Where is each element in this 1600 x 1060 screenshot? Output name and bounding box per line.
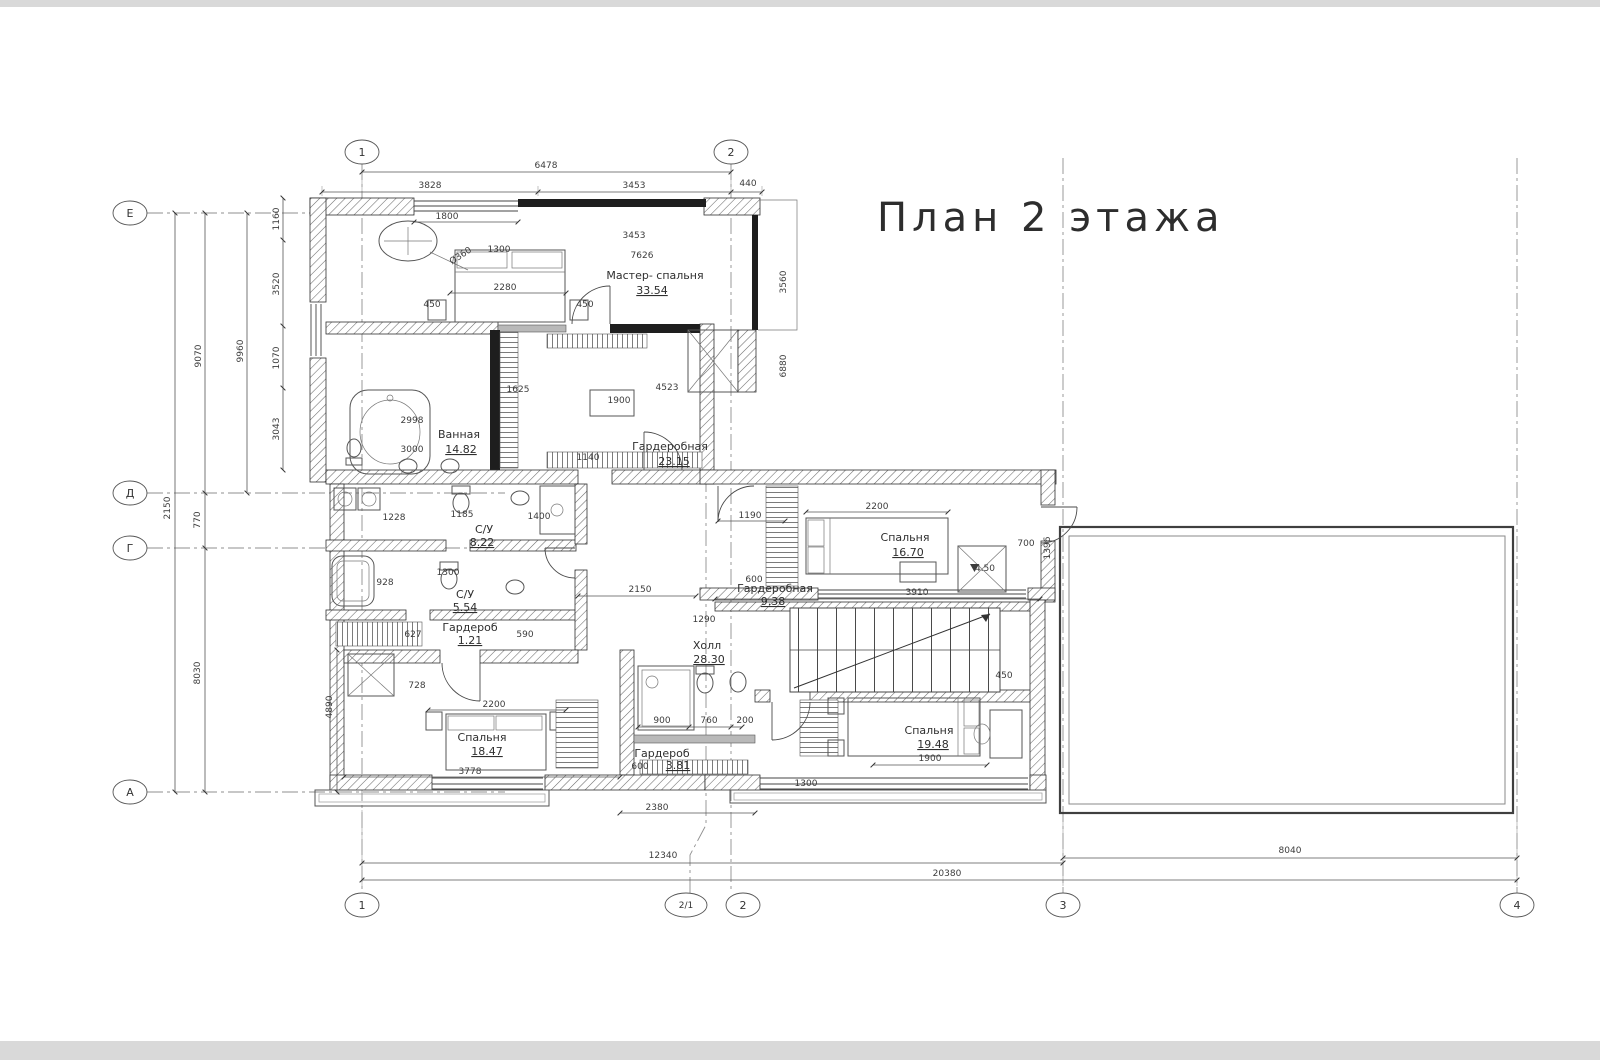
dim-label: 4890 [325, 695, 335, 718]
dim-label: 2200 [483, 700, 506, 710]
dim-label: 1900 [608, 396, 631, 406]
dim-label: 20380 [933, 869, 962, 879]
dim-label: 6478 [535, 161, 558, 171]
room-area: 33.54 [636, 284, 668, 297]
axis-label: А [126, 786, 134, 799]
dim-label: 440 [739, 179, 756, 189]
shower [540, 486, 575, 534]
axis-label: Д [126, 487, 135, 500]
dim-label: 2150 [629, 585, 652, 595]
dim-label: 3778 [459, 767, 482, 777]
room-area: 9.38 [761, 595, 786, 608]
dim-label: 2280 [494, 283, 517, 293]
dim-label: 600 [631, 762, 648, 772]
table [900, 562, 936, 582]
toilet [696, 666, 714, 693]
dim-label: 1185 [451, 510, 474, 520]
balcony-right [730, 790, 1046, 803]
dim-label: 1140 [577, 453, 600, 463]
dim-label: 2380 [646, 803, 669, 813]
dim-label: 1290 [693, 615, 716, 625]
room-name: Гардеробная [737, 582, 813, 595]
dim-label: 3000 [401, 445, 424, 455]
floor-plan-drawing: 1 2 1 2/1 2 3 4 Е Д Г А [0, 0, 1600, 1060]
axis-label: 2/1 [679, 901, 693, 911]
room-name: Спальня [881, 531, 930, 544]
closet-comb [640, 760, 748, 774]
dimensions: 6478 3828 3453 440 12340 20380 8040 1800… [163, 161, 1517, 886]
dim-label: 2150 [163, 496, 173, 519]
room-name: Гардеробная [632, 440, 708, 453]
closet-comb [547, 334, 647, 348]
room-area: 19.48 [917, 738, 949, 751]
room-area: 5.54 [453, 601, 478, 614]
drawing-title: План 2 этажа [877, 195, 1225, 241]
dim-label: 6880 [779, 354, 789, 377]
dim-label: 1300 [488, 245, 511, 255]
dim-label: 627 [404, 630, 421, 640]
dim-label: 12340 [649, 851, 678, 861]
dim-label: 450 [423, 300, 440, 310]
room-area: 3.81 [666, 759, 691, 772]
terrace [1060, 527, 1513, 813]
room-area: 14.82 [445, 443, 477, 456]
dim-label: 728 [408, 681, 425, 691]
dim-label: 1800 [436, 212, 459, 222]
dim-label: 7626 [631, 251, 654, 261]
desk [974, 710, 1022, 758]
dim-label: 1900 [919, 754, 942, 764]
dim-label: 900 [653, 716, 670, 726]
dim-label: 1625 [507, 385, 530, 395]
dim-label: 1300 [437, 568, 460, 578]
axis-label: 1 [359, 899, 366, 912]
dim-label: 3828 [419, 181, 442, 191]
room-name: Холл [693, 639, 721, 652]
dim-label: 1160 [272, 207, 282, 230]
bath-toilet [346, 439, 362, 465]
axis-label: 2 [740, 899, 747, 912]
room-name: Спальня [905, 724, 954, 737]
floor-plan-page: 1 2 1 2/1 2 3 4 Е Д Г А [0, 0, 1600, 1060]
room-area: 8.22 [470, 536, 495, 549]
dim-label: 1190 [739, 511, 762, 521]
dim-label: 3043 [272, 418, 282, 441]
sink [511, 491, 529, 505]
axis-label: 4 [1514, 899, 1521, 912]
room-name: Гардероб [442, 621, 498, 634]
room-name: Спальня [458, 731, 507, 744]
dim-label: 450 [576, 300, 593, 310]
bidet [730, 672, 746, 692]
stairs [790, 608, 1000, 692]
dim-label: 200 [736, 716, 753, 726]
dim-label: 3520 [272, 272, 282, 295]
room-area: 28.30 [693, 653, 725, 666]
axis-label: 3 [1060, 899, 1067, 912]
dim-label: 9070 [194, 344, 204, 367]
dim-label: 770 [193, 511, 203, 528]
page-edge-top [0, 0, 1600, 7]
axis-label: 1 [359, 146, 366, 159]
toilet [452, 486, 470, 513]
room-name: С/У [456, 588, 474, 601]
axis-label: Е [127, 207, 134, 220]
dim-label: 1070 [272, 346, 282, 369]
dim-label: 1228 [383, 513, 406, 523]
shaft-box [688, 330, 756, 392]
dim-label: 1396 [1043, 536, 1053, 559]
room-name: Ванная [438, 428, 480, 441]
dim-label: 2998 [401, 416, 424, 426]
room-area: 1.21 [458, 634, 483, 647]
dim-label: 450 [995, 671, 1012, 681]
dim-label: 1300 [795, 779, 818, 789]
dim-label: 700 [1017, 539, 1034, 549]
dim-label: 4523 [656, 383, 679, 393]
dim-label: 8030 [193, 661, 203, 684]
dim-label: 760 [700, 716, 717, 726]
dim-label: 3910 [906, 588, 929, 598]
sink [506, 580, 524, 594]
page-edge-bottom [0, 1041, 1600, 1060]
dim-label: 1400 [528, 512, 551, 522]
dim-label: Ø360 [447, 245, 474, 268]
dim-label: 590 [516, 630, 533, 640]
closet-comb [800, 700, 838, 756]
room-area: 18.47 [471, 745, 503, 758]
dim-label: 2200 [866, 502, 889, 512]
room-name: Мастер- спальня [606, 269, 703, 282]
bed-right [806, 518, 948, 574]
walls [310, 198, 1056, 790]
axis-label: 2 [728, 146, 735, 159]
closet-comb [766, 486, 798, 586]
dim-label: 3453 [623, 231, 646, 241]
room-area: 23.15 [658, 455, 690, 468]
room-name: С/У [475, 523, 493, 536]
dim-label: 9960 [236, 339, 246, 362]
dim-label: 3560 [779, 270, 789, 293]
room-area: 16.70 [892, 546, 924, 559]
closet-comb [500, 332, 518, 468]
axis-label: Г [127, 542, 134, 555]
dim-label: 8040 [1279, 846, 1302, 856]
dim-label: 928 [376, 578, 393, 588]
dim-label: 3453 [623, 181, 646, 191]
